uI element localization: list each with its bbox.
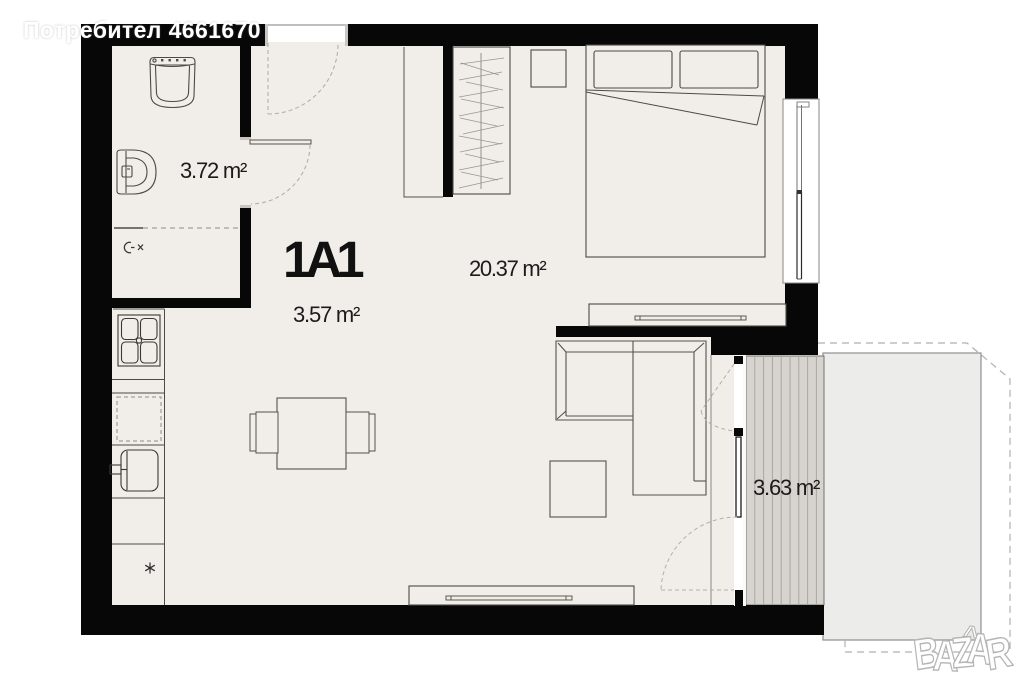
svg-text:20.37 m²: 20.37 m² bbox=[469, 256, 546, 281]
svg-text:3.72 m²: 3.72 m² bbox=[180, 158, 247, 183]
svg-text:3.63 m²: 3.63 m² bbox=[753, 475, 820, 500]
svg-text:1A1: 1A1 bbox=[283, 231, 363, 288]
svg-text:3.57 m²: 3.57 m² bbox=[293, 302, 360, 327]
